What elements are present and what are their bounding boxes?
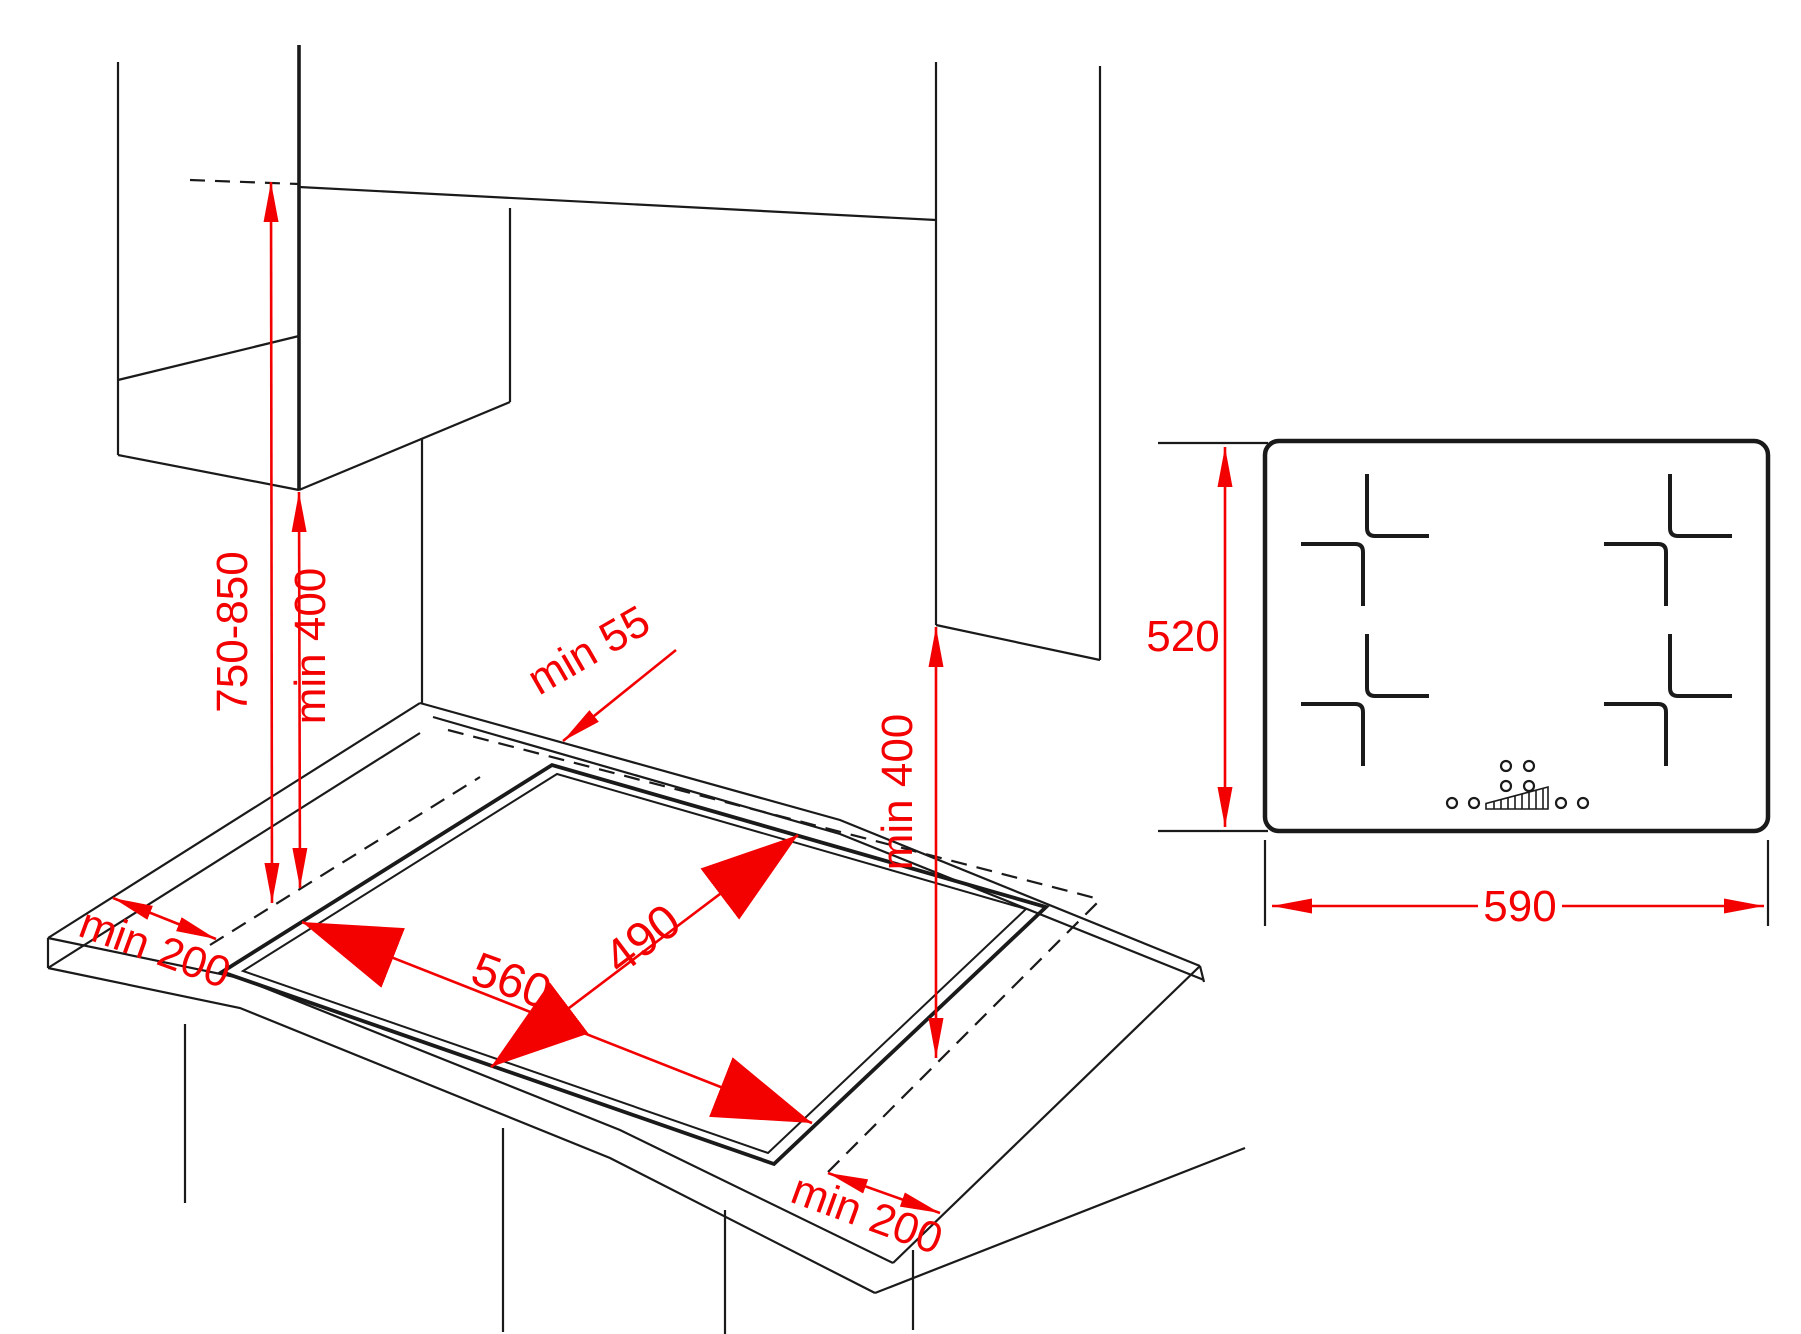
label-height-range: 750-850 bbox=[208, 551, 257, 712]
label-hob-width: 590 bbox=[1483, 882, 1556, 931]
label-hob-depth: 520 bbox=[1146, 612, 1219, 661]
label-panel-clearance: min 400 bbox=[873, 714, 922, 871]
label-hood-clearance: min 400 bbox=[286, 568, 335, 725]
installation-diagram: 750-850 min 400 min 55 min 200 560 490 m… bbox=[0, 0, 1801, 1334]
dim-line-height-range bbox=[271, 182, 272, 903]
installation-diagram-page: 750-850 min 400 min 55 min 200 560 490 m… bbox=[0, 0, 1801, 1334]
